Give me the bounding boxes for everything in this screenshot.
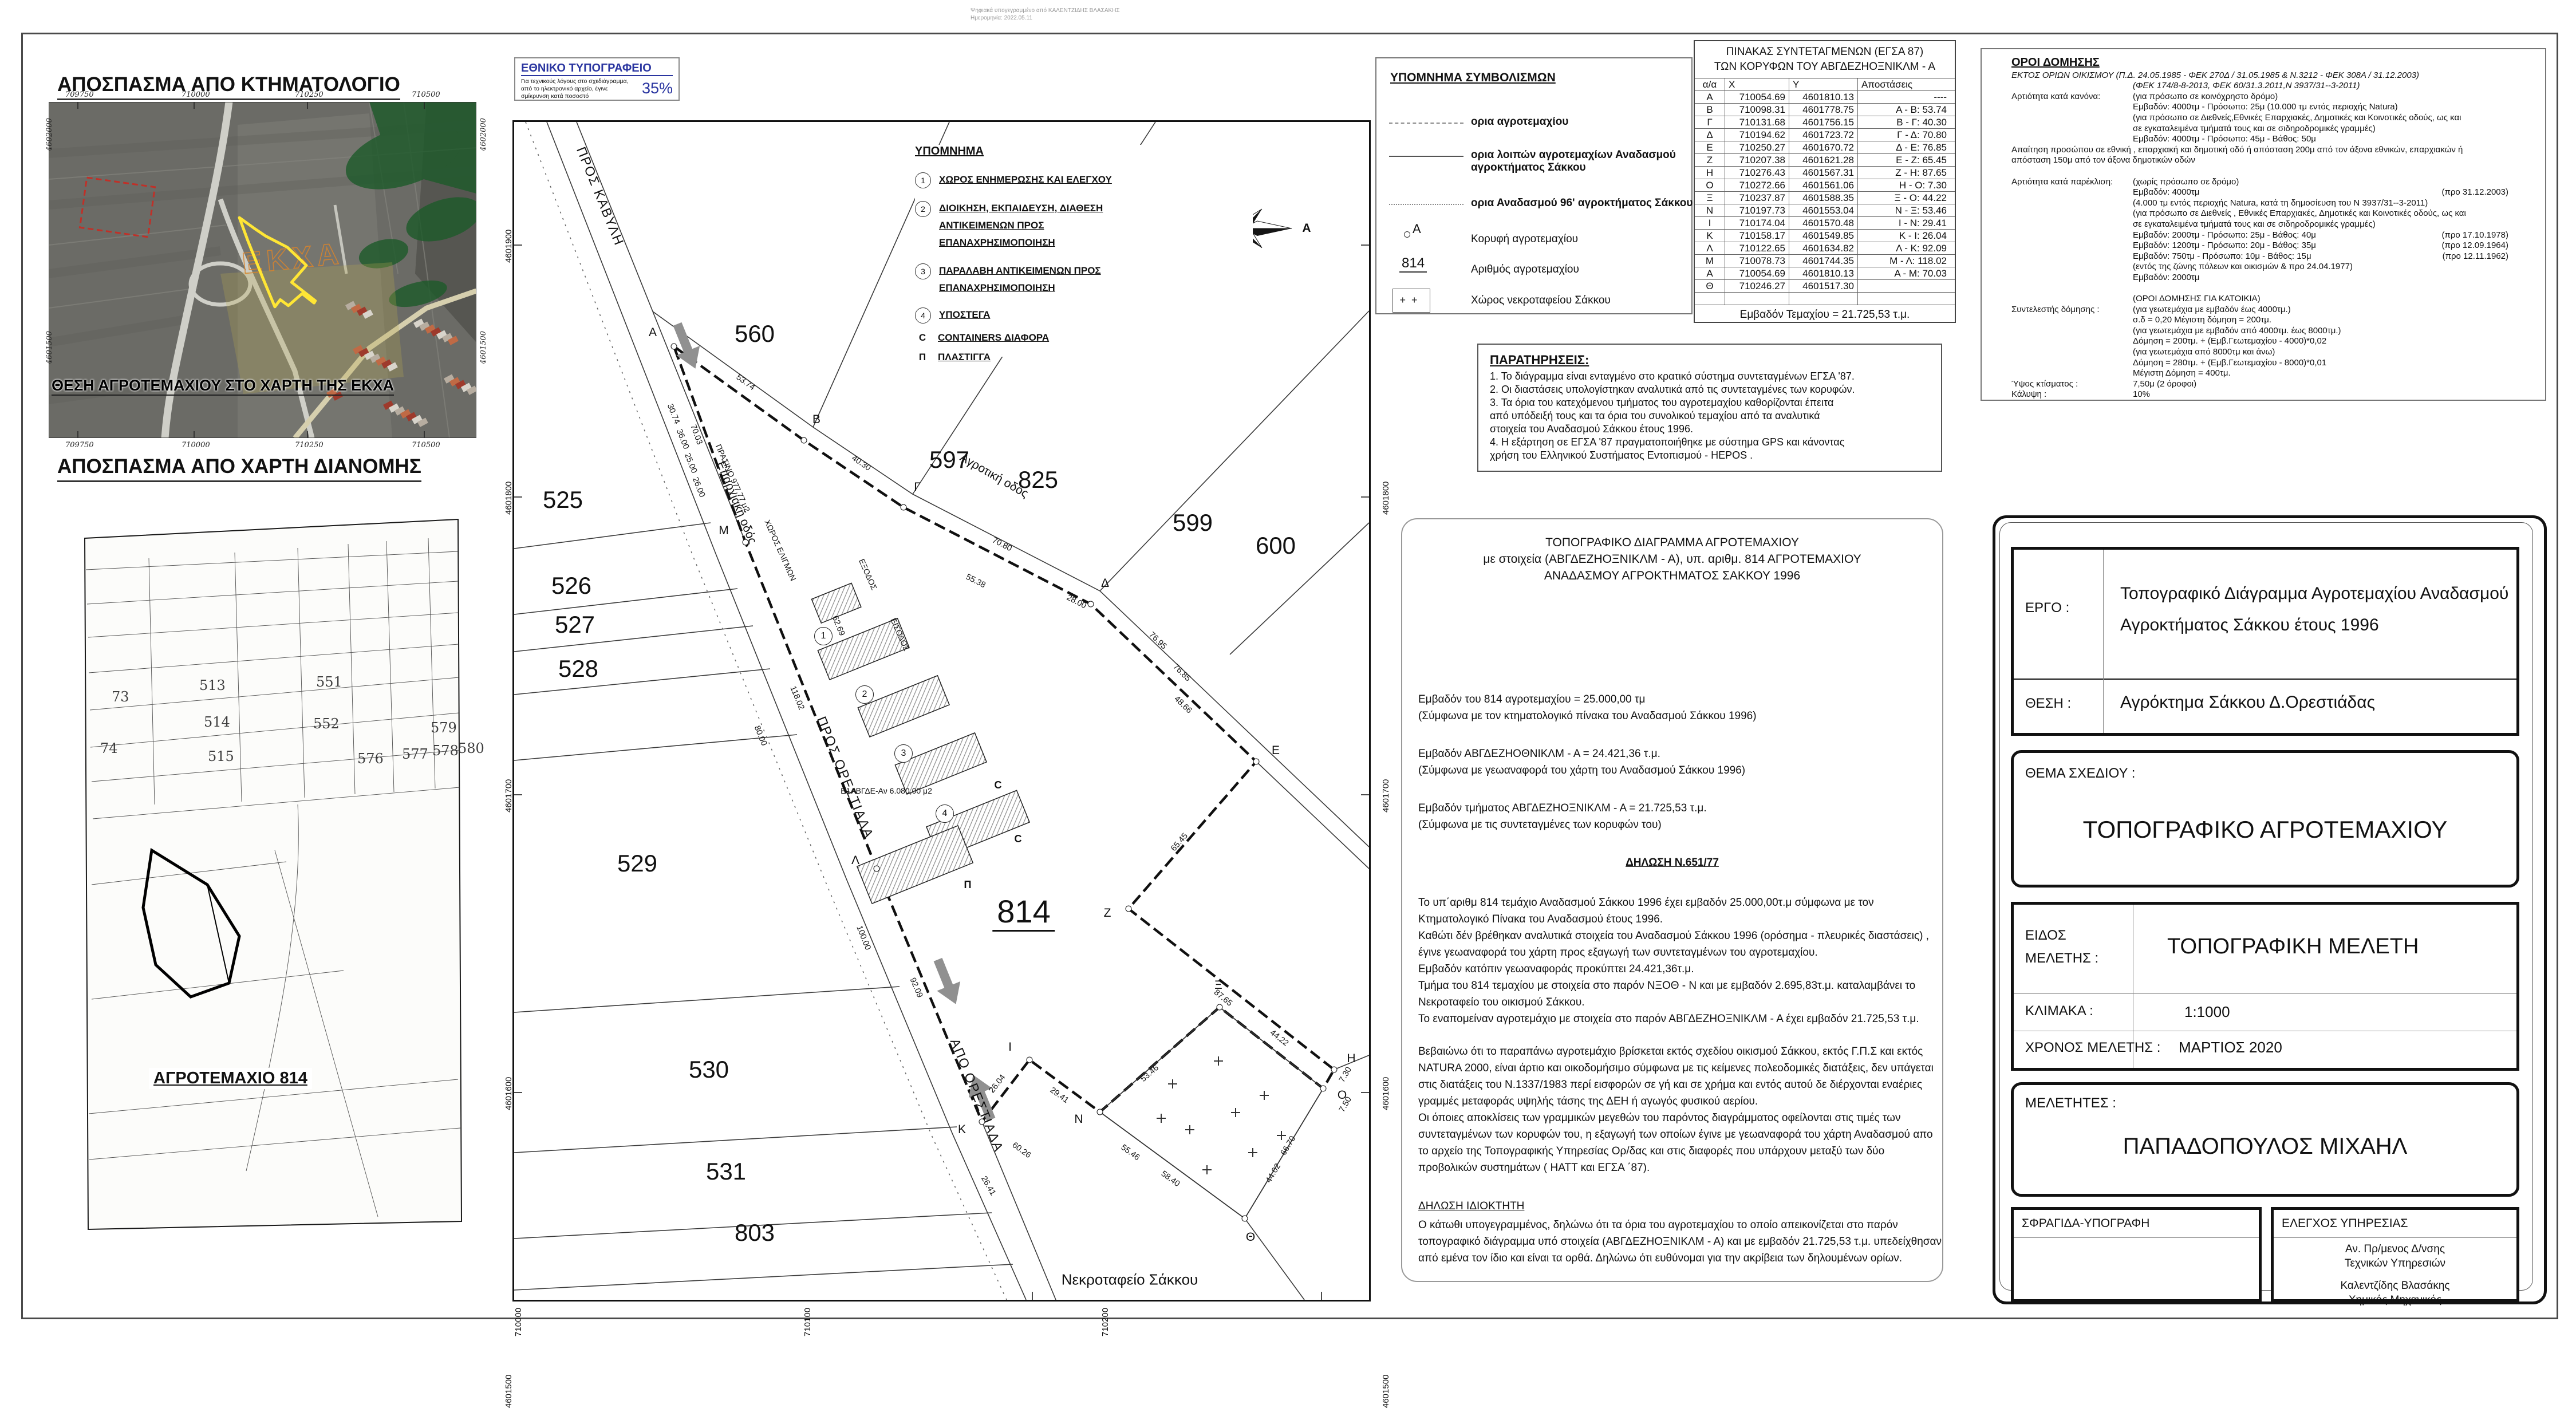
- coords-cell: 4601756.15: [1789, 116, 1857, 128]
- terms-line: Εμβαδόν: 1200τμ - Πρόσωπο: 20μ - Βάθος: …: [2011, 240, 2545, 251]
- coords-cell: 710174.04: [1725, 217, 1789, 229]
- distribution-parcel-number: 74: [100, 740, 118, 756]
- coords-cell: Γ: [1695, 116, 1725, 128]
- coords-cell: 710131.68: [1725, 116, 1789, 128]
- symbol-text: Αριθμός αγροτεμαχίου: [1471, 263, 1579, 276]
- statement-line: στις διατάξεις του Ν.1337/1983 περί εισφ…: [1418, 1076, 1922, 1093]
- coords-cell: Ε: [1695, 141, 1725, 153]
- cadastre-photo: ΕΚΧΑ ΘΕΣΗ ΑΓΡΟΤΕΜΑΧΙΟΥ ΣΤΟ ΧΑΡΤΗ ΤΗΣ ΕΚΧ…: [49, 102, 476, 438]
- statement-line: έγινε γεωαναφορά του χάρτη προς εξαγωγή …: [1418, 944, 1818, 961]
- vertex-point: [1126, 906, 1132, 912]
- coords-cell: Κ - Ι: 26.04: [1857, 230, 1950, 242]
- coords-cell: Γ - Δ: 70.80: [1857, 129, 1950, 141]
- legend-symbol: 1: [915, 172, 931, 188]
- vertex-point: [874, 866, 880, 872]
- terms-text: (για γεωτεμάχια με εμβαδόν έως 4000τμ.): [2133, 305, 2291, 314]
- coords-cell: 4601723.72: [1789, 129, 1857, 141]
- map-tick-bottom: 710200: [1100, 1308, 1110, 1336]
- symbol-text: Χώρος νεκροταφείου Σάκκου: [1471, 294, 1611, 307]
- vertex-point: [979, 1119, 985, 1125]
- symbol-text: ορια λοιπών αγροτεμαχίων Αναδασμούαγροκτ…: [1471, 149, 1676, 174]
- parcel-number: 560: [735, 320, 775, 348]
- statement-line: Εμβαδόν ΑΒΓΔΕΖΗΟΘΝΙΚΛΜ - Α = 24.421,36 τ…: [1418, 746, 1660, 762]
- coords-cell: Η - Ο: 7.30: [1857, 179, 1950, 191]
- photo-tick-bottom: 710000: [182, 441, 210, 449]
- statement-line: Εμβαδόν κατόπιν γεωαναφοράς προκύπτει 24…: [1418, 961, 1694, 977]
- map-tick-right: 4601700: [1381, 779, 1391, 813]
- terms-date: (προ 12.09.1964): [2442, 240, 2508, 251]
- terms-text: (ΟΡΟΙ ΔΟΜΗΣΗΣ ΓΙΑ ΚΑΤΟΙΚΙΑ): [2133, 294, 2261, 303]
- terms-text: (για πρόσωπο σε Διεθνείς,Εθνικές Επαρχια…: [2133, 113, 2461, 123]
- terms-label: Αρτιότητα κατά κανόνα:: [2011, 92, 2133, 102]
- statement-line: Το υπ΄αριθμ 814 τεμάχιο Αναδασμού Σάκκου…: [1418, 894, 1874, 911]
- map-label: ΠΡΟΣ ΟΡΕΣΤΙΑΔΑ: [814, 714, 877, 841]
- coords-cell: 4601810.13: [1789, 267, 1857, 279]
- coords-cell: 710207.38: [1725, 154, 1789, 166]
- dimension-label: 62.69: [830, 614, 846, 637]
- dimension-label: 76.85: [1171, 662, 1192, 684]
- coords-cell: Θ: [1695, 280, 1725, 292]
- service-check-line: Καλεντζίδης Βλασάκης: [2274, 1279, 2516, 1293]
- distribution-map-graphic: [57, 484, 481, 1268]
- coords-cell: Ι - Ν: 29.41: [1857, 217, 1950, 229]
- coords-cell: Ζ - Η: 87.65: [1857, 167, 1950, 179]
- terms-label: Αρτιότητα κατά παρέκλιση:: [2011, 177, 2133, 188]
- distribution-parcel-number: 73: [112, 689, 129, 705]
- statement-line: ΤΟΠΟΓΡΑΦΙΚΟ ΔΙΑΓΡΑΜΜΑ ΑΓΡΟΤΕΜΑΧΙΟΥ: [1418, 534, 1926, 551]
- dimension-label: 30.74: [665, 403, 681, 425]
- map-label: ΕΞΟΔΟΣ: [857, 557, 879, 591]
- legend-symbol: C: [915, 329, 930, 346]
- terms-text: σε εγκαταλειμένα τμήματά τους και σε σιδ…: [2133, 124, 2376, 133]
- legend-symbol: 3: [915, 263, 931, 279]
- symbol-sample-solid: [1389, 156, 1463, 157]
- coords-cell: 710158.17: [1725, 230, 1789, 242]
- terms-text: Εμβαδόν: 750τμ - Πρόσωπο: 10μ - Βάθος: 1…: [2133, 251, 2311, 261]
- parcel-number: 803: [735, 1219, 775, 1247]
- coords-cell: ----: [1857, 91, 1950, 103]
- photo-tick-bottom: 709750: [65, 441, 94, 449]
- symbol-text: Κορυφή αγροτεμαχίου: [1471, 233, 1578, 246]
- terms-label: Ύψος κτίσματος :: [2011, 379, 2133, 390]
- elegxos-label: ΕΛΕΓΧΟΣ ΥΠΗΡΕΣΙΑΣ: [2282, 1217, 2408, 1230]
- legend-text: ΠΛΑΣΤΙΓΓΑ: [938, 349, 991, 366]
- coords-row: Μ710078.734601744.35Μ - Λ: 118.02: [1695, 254, 1955, 267]
- vertex-point: [801, 437, 807, 444]
- coords-cell: 710246.27: [1725, 280, 1789, 292]
- vertex-letter: Λ: [851, 854, 859, 867]
- dimension-label: 70.03: [688, 423, 704, 446]
- eidos-value: ΤΟΠΟΓΡΑΦΙΚΗ ΜΕΛΕΤΗ: [2167, 934, 2419, 959]
- terms-text: (4.000 τμ εντός περιοχής Natura, κατά τη…: [2133, 198, 2428, 208]
- statement-line: Ο κάτωθι υπογεγραμμένος, δηλώνω ότι τα ό…: [1418, 1217, 1898, 1233]
- statement-line: Εμβαδόν του 814 αγροτεμαχίου = 25.000,00…: [1418, 691, 1645, 708]
- coords-header: X: [1725, 78, 1789, 90]
- terms-line: Εμβαδόν: 4000τμ(προ 31.12.2003): [2011, 187, 2545, 198]
- coords-row: Λ710122.654601634.82Λ - Κ: 92.09: [1695, 242, 1955, 254]
- service-check-line: Χημικός Μηχανικός: [2274, 1293, 2516, 1307]
- cadastre-inset-title: ΑΠΟΣΠΑΣΜΑ ΑΠΟ ΚΤΗΜΑΤΟΛΟΓΙΟ: [57, 73, 400, 100]
- terms-label: Κάλυψη :: [2011, 389, 2133, 400]
- vertex-letter: Δ: [1101, 577, 1109, 590]
- coords-cell: [1857, 280, 1950, 292]
- coords-cell: Ν - Ξ: 53.46: [1857, 204, 1950, 216]
- map-label: Ε1ΑΒΓΔΕ-Αν 6.080,00 μ2: [841, 786, 932, 795]
- terms-line: (για γεωτεμάχια με εμβαδόν από 4000τμ. έ…: [2011, 326, 2545, 337]
- terms-text: Εμβαδόν: 2000τμ - Πρόσωπο: 25μ - Βάθος: …: [2133, 230, 2316, 240]
- dimension-label: 25.00: [683, 452, 699, 475]
- notes-heading: ΠΑΡΑΤΗΡΗΣΕΙΣ:: [1490, 353, 1930, 368]
- legend-item: CCONTAINERS ΔΙΑΦΟΡΑ: [915, 329, 1049, 346]
- digital-signature-note: Ψηφιακά υπογεγραμμένο από ΚΑΛΕΝΤΖΙΔΗΣ ΒΛ…: [971, 7, 1120, 22]
- vertex-point: [1331, 1067, 1338, 1073]
- xronos-value: ΜΑΡΤΙΟΣ 2020: [2179, 1039, 2282, 1056]
- terms-date: (προ 31.12.2003): [2442, 187, 2508, 198]
- vertex-letter: Ν: [1074, 1113, 1083, 1126]
- dimension-label: 53.74: [735, 373, 757, 392]
- legend-title: ΥΠΟΜΝΗΜΑ: [915, 145, 1253, 158]
- coords-row: Ι710174.044601570.48Ι - Ν: 29.41: [1695, 216, 1955, 229]
- distribution-parcel-number: 576: [357, 751, 384, 767]
- notes-line: 1. Το διάγραμμα είναι ενταγμένο στο κρατ…: [1490, 370, 1930, 383]
- structure-letter: C: [1009, 830, 1027, 847]
- terms-line: Εμβαδόν: 2000τμ: [2011, 273, 2545, 283]
- terms-text: σ.δ = 0,20 Μέγιστη δόμηση = 200τμ.: [2133, 315, 2271, 325]
- service-check-box: ΕΛΕΓΧΟΣ ΥΠΗΡΕΣΙΑΣ Αν. Πρ/μενος Δ/νσηςΤεχ…: [2271, 1207, 2519, 1302]
- statement-line: Βεβαιώνω ότι το παραπάνω αγροτεμάχιο βρί…: [1418, 1043, 1923, 1060]
- terms-text: (για πρόσωπο σε κοινόχρηστο δρόμο): [2133, 92, 2278, 101]
- coords-row: Θ710246.274601517.30: [1695, 279, 1955, 292]
- photo-tick-left: 4601500: [45, 331, 54, 364]
- dimension-label: 92.09: [908, 976, 925, 999]
- statement-line: Καθώτι δέν βρέθηκαν αναλυτικά στοιχεία τ…: [1418, 928, 1929, 944]
- coords-cell: Λ: [1695, 242, 1725, 254]
- coords-cell: 710197.73: [1725, 204, 1789, 216]
- distribution-parcel-number: 551: [316, 674, 342, 690]
- coords-cell: Δ - Ε: 76.85: [1857, 141, 1950, 153]
- notes-line: 3. Τα όρια του κατεχόμενου τμήματος του …: [1490, 396, 1930, 409]
- coords-cell: 4601570.48: [1789, 217, 1857, 229]
- structure-number: 3: [894, 744, 913, 763]
- legend-item: 2ΔΙΟΙΚΗΣΗ, ΕΚΠΑΙΔΕΥΣΗ, ΔΙΑΘΕΣΗΑΝΤΙΚΕΙΜΕΝ…: [915, 200, 1103, 251]
- coords-cell: 710250.27: [1725, 141, 1789, 153]
- stamp-title: ΕΘΝΙΚΟ ΤΥΠΟΓΡΑΦΕΙΟ: [521, 62, 673, 76]
- coords-cell: [1725, 293, 1789, 305]
- eidos-label-line2: ΜΕΛΕΤΗΣ :: [2025, 951, 2098, 967]
- vertex-letter: Κ: [958, 1123, 966, 1137]
- coords-cell: 710194.62: [1725, 129, 1789, 141]
- coords-table-footer: Εμβαδόν Τεμαχίου = 21.725,53 τ.μ.: [1695, 305, 1955, 325]
- terms-line: (για πρόσωπο σε Διεθνείς , Εθνικές Επαρχ…: [2011, 208, 2545, 219]
- terms-text: Εμβαδόν: 4000τμ: [2133, 187, 2199, 197]
- coords-cell: [1789, 293, 1857, 305]
- distribution-parcel-number: 513: [199, 677, 226, 693]
- statement-line: Οι όποιες αποκλίσεις των γραμμικών μεγεθ…: [1418, 1110, 1901, 1126]
- statement-line: Εμβαδόν τμήματος ΑΒΓΔΕΖΗΟΞΝΙΚΛΜ - Α = 21…: [1418, 800, 1707, 817]
- dimension-label: 55.38: [964, 573, 987, 590]
- legend-symbol: 4: [915, 307, 931, 324]
- title-block: ΕΡΓΟ : Τοπογραφικό Διάγραμμα Αγροτεμαχίο…: [1993, 515, 2549, 1306]
- coords-cell: [1695, 293, 1725, 305]
- parcel-number: 527: [555, 611, 595, 638]
- coords-cell: 4601549.85: [1789, 230, 1857, 242]
- coords-row: Κ710158.174601549.85Κ - Ι: 26.04: [1695, 229, 1955, 242]
- vertex-letter: Η: [1347, 1052, 1355, 1066]
- coords-cell: 710054.69: [1725, 91, 1789, 103]
- coords-cell: Α - Μ: 70.03: [1857, 267, 1950, 279]
- terms-line: Εμβαδόν: 2000τμ - Πρόσωπο: 25μ - Βάθος: …: [2011, 230, 2545, 241]
- terms-line: [2011, 283, 2545, 294]
- photo-overlay-title: ΘΕΣΗ ΑΓΡΟΤΕΜΑΧΙΟΥ ΣΤΟ ΧΑΡΤΗ ΤΗΣ ΕΚΧΑ: [52, 377, 394, 396]
- parcel-number: 526: [551, 572, 591, 600]
- survey-sheet: { "signature": { "line1": "Ψηφιακά υπογε…: [0, 0, 2576, 1333]
- notes-panel: ΠΑΡΑΤΗΡΗΣΕΙΣ: 1. Το διάγραμμα είναι εντα…: [1477, 344, 1942, 472]
- terms-text: (χωρίς πρόσωπο σε δρόμο): [2133, 177, 2239, 187]
- terms-line: Μέγιστη Δόμηση = 400τμ.: [2011, 368, 2545, 379]
- terms-line: σε εγκαταλειμένα τμήματά τους και σε σιδ…: [2011, 219, 2545, 230]
- terms-date: (προ 17.10.1978): [2442, 230, 2508, 241]
- vertex-letter: Ι: [1008, 1040, 1012, 1054]
- vertex-point: [901, 504, 907, 511]
- coords-cell: Ν: [1695, 204, 1725, 216]
- coords-cell: Δ: [1695, 129, 1725, 141]
- coords-row: Ν710197.734601553.04Ν - Ξ: 53.46: [1695, 204, 1955, 216]
- coords-cell: [1857, 293, 1950, 305]
- statement-line: προβολικών συστημάτων ( ΗΑΤΤ και ΕΓΣΑ ΄8…: [1418, 1159, 1650, 1176]
- statement-line: (Σύμφωνα με τον κτηματολογικό πίνακα του…: [1418, 708, 1757, 724]
- coords-cell: 710078.73: [1725, 255, 1789, 267]
- photo-tick-top: 710250: [295, 90, 324, 99]
- dimension-label: 80.00: [752, 724, 768, 747]
- dimension-label: 44.02: [1264, 1162, 1283, 1184]
- terms-text: (για γεωτεμάχια από 8000τμ και άνω): [2133, 347, 2275, 357]
- statement-line: τοπογραφικό διάγραμμα υπό στοιχεία (ΑΒΓΔ…: [1418, 1233, 1942, 1250]
- distribution-parcel-number: 515: [208, 748, 234, 764]
- vertex-letter: Θ: [1246, 1230, 1255, 1244]
- terms-text: Μέγιστη Δόμηση = 400τμ.: [2133, 368, 2231, 378]
- coords-cell: 4601553.04: [1789, 204, 1857, 216]
- vertex-point: [1217, 1004, 1223, 1011]
- statement-line: Το εναπομείναν αγροτεμάχιο με στοιχεία σ…: [1418, 1011, 1919, 1027]
- vertex-letter: Β: [812, 413, 820, 427]
- thesi-label: ΘΕΣΗ :: [2025, 696, 2071, 712]
- drawing-subject-box: ΘΕΜΑ ΣΧΕΔΙΟΥ : ΤΟΠΟΓΡΑΦΙΚΟ ΑΓΡΟΤΕΜΑΧΙΟΥ: [2011, 750, 2519, 888]
- project-location-box: ΕΡΓΟ : Τοπογραφικό Διάγραμμα Αγροτεμαχίο…: [2011, 547, 2519, 736]
- dimension-label: 26.00: [691, 476, 707, 499]
- dimension-label: 100.00: [854, 924, 872, 951]
- terms-line: Συντελεστής δόμησης :(για γεωτεμάχια με …: [2011, 305, 2545, 315]
- coords-cell: Α: [1695, 267, 1725, 279]
- stamp-body2: από το ηλεκτρονικό αρχείο, έγινε: [521, 85, 646, 93]
- dimension-label: 28.00: [1065, 593, 1088, 611]
- statement-line: NATURA 2000, είναι άρτιο και οικοδομήσιμ…: [1418, 1060, 1934, 1076]
- terms-text: Δόμηση = 280τμ. + (Εμβ.Γεωτεμαχίου - 800…: [2133, 358, 2326, 368]
- parcel-number: 528: [558, 655, 598, 683]
- coords-cell: Α: [1695, 91, 1725, 103]
- stamp-signature-box: ΣΦΡΑΓΙΔΑ-ΥΠΟΓΡΑΦΗ: [2011, 1207, 2262, 1302]
- statement-line: με στοιχεία (ΑΒΓΔΕΖΗΟΞΝΙΚΛΜ - Α), υπ. αρ…: [1418, 551, 1926, 567]
- signature-line1: Ψηφιακά υπογεγραμμένο από ΚΑΛΕΝΤΖΙΔΗΣ ΒΛ…: [971, 7, 1120, 14]
- statement-line: ΑΝΑΔΑΣΜΟΥ ΑΓΡΟΚΤΗΜΑΤΟΣ ΣΑΚΚΟΥ 1996: [1418, 567, 1926, 584]
- statement-line: ΔΗΛΩΣΗ Ν.651/77: [1418, 854, 1926, 871]
- meletites-value: ΠΑΠΑΔΟΠΟΥΛΟΣ ΜΙΧΑΗΛ: [2014, 1134, 2516, 1159]
- coords-row: [1695, 292, 1955, 305]
- coords-row: Β710098.314601778.75Α - Β: 53.74: [1695, 103, 1955, 116]
- distribution-parcel-number: 578: [432, 743, 459, 759]
- distribution-parcel-number: 552: [313, 716, 340, 732]
- terms-line: (ΦΕΚ 174/8-8-2013, ΦΕΚ 60/31.3.2011,Ν 39…: [2011, 81, 2545, 92]
- map-tick-left: 4601600: [504, 1077, 514, 1110]
- statement-block: ΤΟΠΟΓΡΑΦΙΚΟ ΔΙΑΓΡΑΜΜΑ ΑΓΡΟΤΕΜΑΧΙΟΥμε στο…: [1401, 518, 1943, 1282]
- dimension-label: 40.30: [850, 453, 872, 473]
- terms-line: Εμβαδόν: 4000τμ - Πρόσωπο: 25μ (10.000 τ…: [2011, 102, 2545, 113]
- distribution-inset-title: ΑΠΟΣΠΑΣΜΑ ΑΠΟ ΧΑΡΤΗ ΔΙΑΝΟΜΗΣ: [57, 455, 421, 482]
- terms-line: Ύψος κτίσματος :7,50μ (2 όροφοι): [2011, 379, 2545, 390]
- thema-value: ΤΟΠΟΓΡΑΦΙΚΟ ΑΓΡΟΤΕΜΑΧΙΟΥ: [2014, 816, 2516, 843]
- distribution-parcel-number: 580: [458, 740, 484, 756]
- coords-row: Γ710131.684601756.15Β - Γ: 40.30: [1695, 116, 1955, 128]
- coords-cell: Ι: [1695, 217, 1725, 229]
- parcel-number: 531: [706, 1158, 746, 1185]
- terms-line: (4.000 τμ εντός περιοχής Natura, κατά τη…: [2011, 198, 2545, 209]
- statement-line: ΔΗΛΩΣΗ ΙΔΙΟΚΤΗΤΗ: [1418, 1198, 1524, 1214]
- thesi-value: Αγρόκτημα Σάκκου Δ.Ορεστιάδας: [2120, 693, 2375, 712]
- stamp-body1: Για τεχνικούς λόγους στο σχεδιάγραμμα,: [521, 78, 646, 85]
- map-tick-bottom: 710100: [803, 1308, 812, 1336]
- vertex-letter: Ο: [1338, 1088, 1347, 1102]
- terms-line: Εμβαδόν: 750τμ - Πρόσωπο: 10μ - Βάθος: 1…: [2011, 251, 2545, 262]
- dimension-label: 29.41: [1048, 1086, 1071, 1105]
- map-tick-right: 4601600: [1381, 1077, 1391, 1110]
- terms-line: [2011, 166, 2545, 177]
- map-label: 814: [992, 893, 1055, 932]
- map-tick-right: 4601800: [1381, 482, 1391, 515]
- coords-cell: 710272.66: [1725, 179, 1789, 191]
- parcel-number: 529: [617, 850, 657, 877]
- coords-cell: 4601670.72: [1789, 141, 1857, 153]
- terms-text: Εμβαδόν: 4000τμ - Πρόσωπο: 25μ (10.000 τ…: [2133, 102, 2398, 112]
- terms-line: (για πρόσωπο σε Διεθνείς,Εθνικές Επαρχια…: [2011, 113, 2545, 124]
- coords-row: Ε710250.274601670.72Δ - Ε: 76.85: [1695, 141, 1955, 153]
- terms-line: Δόμηση = 280τμ. + (Εμβ.Γεωτεμαχίου - 800…: [2011, 358, 2545, 369]
- stamp-percent: 35%: [642, 80, 673, 97]
- map-tick-left: 4601500: [504, 1375, 514, 1408]
- statement-line: (Σύμφωνα με τις συντεταγμένες των κορυφώ…: [1418, 817, 1662, 833]
- vertex-point: [1242, 1216, 1248, 1222]
- photo-tick-right: 4602000: [479, 118, 488, 151]
- coords-row: Α710054.694601810.13----: [1695, 90, 1955, 103]
- coords-cell: Η: [1695, 167, 1725, 179]
- statement-line: Κτηματολογικό Πίνακα του Αναδασμού έτους…: [1418, 911, 1663, 928]
- coords-cell: Ζ: [1695, 154, 1725, 166]
- terms-line: Εμβαδόν: 4000τμ - Πρόσωπο: 45μ - Βάθος: …: [2011, 134, 2545, 145]
- sfragida-label: ΣΦΡΑΓΙΔΑ-ΥΠΟΓΡΑΦΗ: [2022, 1217, 2149, 1230]
- distribution-parcel-number: 579: [431, 720, 457, 736]
- coords-cell: Μ: [1695, 255, 1725, 267]
- notes-line: 2. Οι διαστάσεις υπολογίστηκαν αναλυτικά…: [1490, 383, 1930, 396]
- coords-row: Δ710194.624601723.72Γ - Δ: 70.80: [1695, 128, 1955, 141]
- coords-header-row: α/αXYΑποστάσεις: [1695, 78, 1955, 90]
- distribution-parcel-number: 577: [402, 746, 428, 762]
- structure-number: 2: [855, 685, 874, 704]
- coords-cell: 710276.43: [1725, 167, 1789, 179]
- coords-cell: Ξ: [1695, 192, 1725, 204]
- coords-cell: Β: [1695, 104, 1725, 116]
- symbol-sample-cemetery: ++: [1392, 289, 1430, 313]
- coords-cell: 710237.87: [1725, 192, 1789, 204]
- terms-line: Αρτιότητα κατά παρέκλιση:(χωρίς πρόσωπο …: [2011, 177, 2545, 188]
- coords-row: Ζ710207.384601621.28Ε - Ζ: 65.45: [1695, 153, 1955, 166]
- dimension-label: 66.70: [1279, 1134, 1297, 1157]
- terms-line: σ.δ = 0,20 Μέγιστη δόμηση = 200τμ.: [2011, 315, 2545, 326]
- map-label: Νεκροταφείο Σάκκου: [1062, 1271, 1198, 1289]
- map-label: ΕΙΣΟΔΟΣ: [889, 617, 911, 652]
- structure-number: 4: [936, 804, 954, 823]
- terms-line: απόσταση 150μ από τον άξονα δημοτικών οδ…: [2011, 155, 2545, 166]
- vertex-point: [1027, 1057, 1033, 1063]
- vertex-letter: Ζ: [1104, 906, 1111, 920]
- legend-symbol: 2: [915, 201, 931, 217]
- coords-cell: Β - Γ: 40.30: [1857, 116, 1950, 128]
- dimension-label: 76.95: [1147, 630, 1168, 652]
- terms-text: σε εγκαταλειμένα τμήματά τους και σε σιδ…: [2133, 219, 2376, 229]
- statement-line: συντεταγμένων των κορυφών του, η εξαγωγή…: [1418, 1126, 1933, 1143]
- symbol-text: ορια αγροτεμαχίου: [1471, 116, 1568, 128]
- legend-text: ΥΠΟΣΤΕΓΑ: [939, 306, 990, 324]
- dimension-label: 65.45: [1169, 831, 1190, 853]
- signature-line2: Ημερομηνία: 2022.05.11: [971, 14, 1120, 22]
- statement-line: (Σύμφωνα με γεωαναφορά του χάρτη του Ανα…: [1418, 762, 1745, 779]
- klimaka-value: 1:1000: [2184, 1003, 2230, 1021]
- coords-row: Α710054.694601810.13Α - Μ: 70.03: [1695, 267, 1955, 279]
- xronos-label: ΧΡΟΝΟΣ ΜΕΛΕΤΗΣ :: [2025, 1040, 2160, 1056]
- terms-text: 7,50μ (2 όροφοι): [2133, 379, 2196, 389]
- vertex-point: [671, 344, 677, 350]
- ergo-value-line1: Τοπογραφικό Διάγραμμα Αγροτεμαχίου Αναδα…: [2120, 584, 2508, 604]
- notes-line: χρήση του Ελληνικού Συστήματος Εντοπισμο…: [1490, 449, 1930, 462]
- coords-header: Αποστάσεις: [1857, 78, 1950, 90]
- statement-line: γραμμές μεταφοράς υψηλής τάσης της ΔΕΗ ή…: [1418, 1093, 1758, 1110]
- dimension-label: 60.26: [1011, 1141, 1033, 1160]
- terms-line: Απαίτηση προσώπου σε εθνική , επαρχιακή …: [2011, 145, 2545, 156]
- dimension-label: 55.46: [1119, 1143, 1142, 1162]
- vertex-letter: Μ: [719, 524, 729, 538]
- service-check-line: Αν. Πρ/μενος Δ/νσης: [2274, 1242, 2516, 1256]
- dimension-label: 48.66: [1172, 695, 1193, 716]
- dimension-label: 53.46: [1139, 1063, 1161, 1084]
- symbol-sample-vertex: Α: [1404, 226, 1478, 241]
- photo-tick-top: 710500: [412, 90, 440, 99]
- vertex-letter: Α: [649, 326, 657, 340]
- vertex-point: [1097, 1109, 1103, 1115]
- map-label: ΑΠΟ ΟΡΕΣΤΙΑΔΑ: [947, 1036, 1007, 1154]
- terms-line: σε εγκαταλειμένα τμήματά τους και σε σιδ…: [2011, 124, 2545, 135]
- map-tick-bottom: 710000: [514, 1308, 523, 1336]
- photo-tick-bottom: 710250: [295, 441, 324, 449]
- coords-cell: Α - Β: 53.74: [1857, 104, 1950, 116]
- coords-cell: 710122.65: [1725, 242, 1789, 254]
- legend-text: ΠΑΡΑΛΑΒΗ ΑΝΤΙΚΕΙΜΕΝΩΝ ΠΡΟΣΕΠΑΝΑΧΡΗΣΙΜΟΠΟ…: [939, 262, 1101, 297]
- surveyors-box: ΜΕΛΕΤΗΤΕΣ : ΠΑΠΑΔΟΠΟΥΛΟΣ ΜΙΧΑΗΛ: [2011, 1082, 2519, 1197]
- coords-header: α/α: [1695, 78, 1725, 90]
- statement-line: από εμένα τον ίδιο και είναι τα ορθά. Δη…: [1418, 1250, 1902, 1267]
- symbols-legend: ΥΠΟΜΝΗΜΑ ΣΥΜΒΟΛΙΣΜΩΝ ορια αγροτεμαχίουορ…: [1375, 57, 1693, 314]
- coords-cell: Ε - Ζ: 65.45: [1857, 154, 1950, 166]
- klimaka-label: ΚΛΙΜΑΚΑ :: [2025, 1003, 2093, 1019]
- terms-text: (εντός της ζώνης πόλεων και οικισμών & π…: [2133, 262, 2353, 271]
- coords-table-title1: ΠΙΝΑΚΑΣ ΣΥΝΤΕΤΑΓΜΕΝΩΝ (ΕΓΣΑ 87): [1695, 45, 1955, 60]
- coords-row: Η710276.434601567.31Ζ - Η: 87.65: [1695, 166, 1955, 179]
